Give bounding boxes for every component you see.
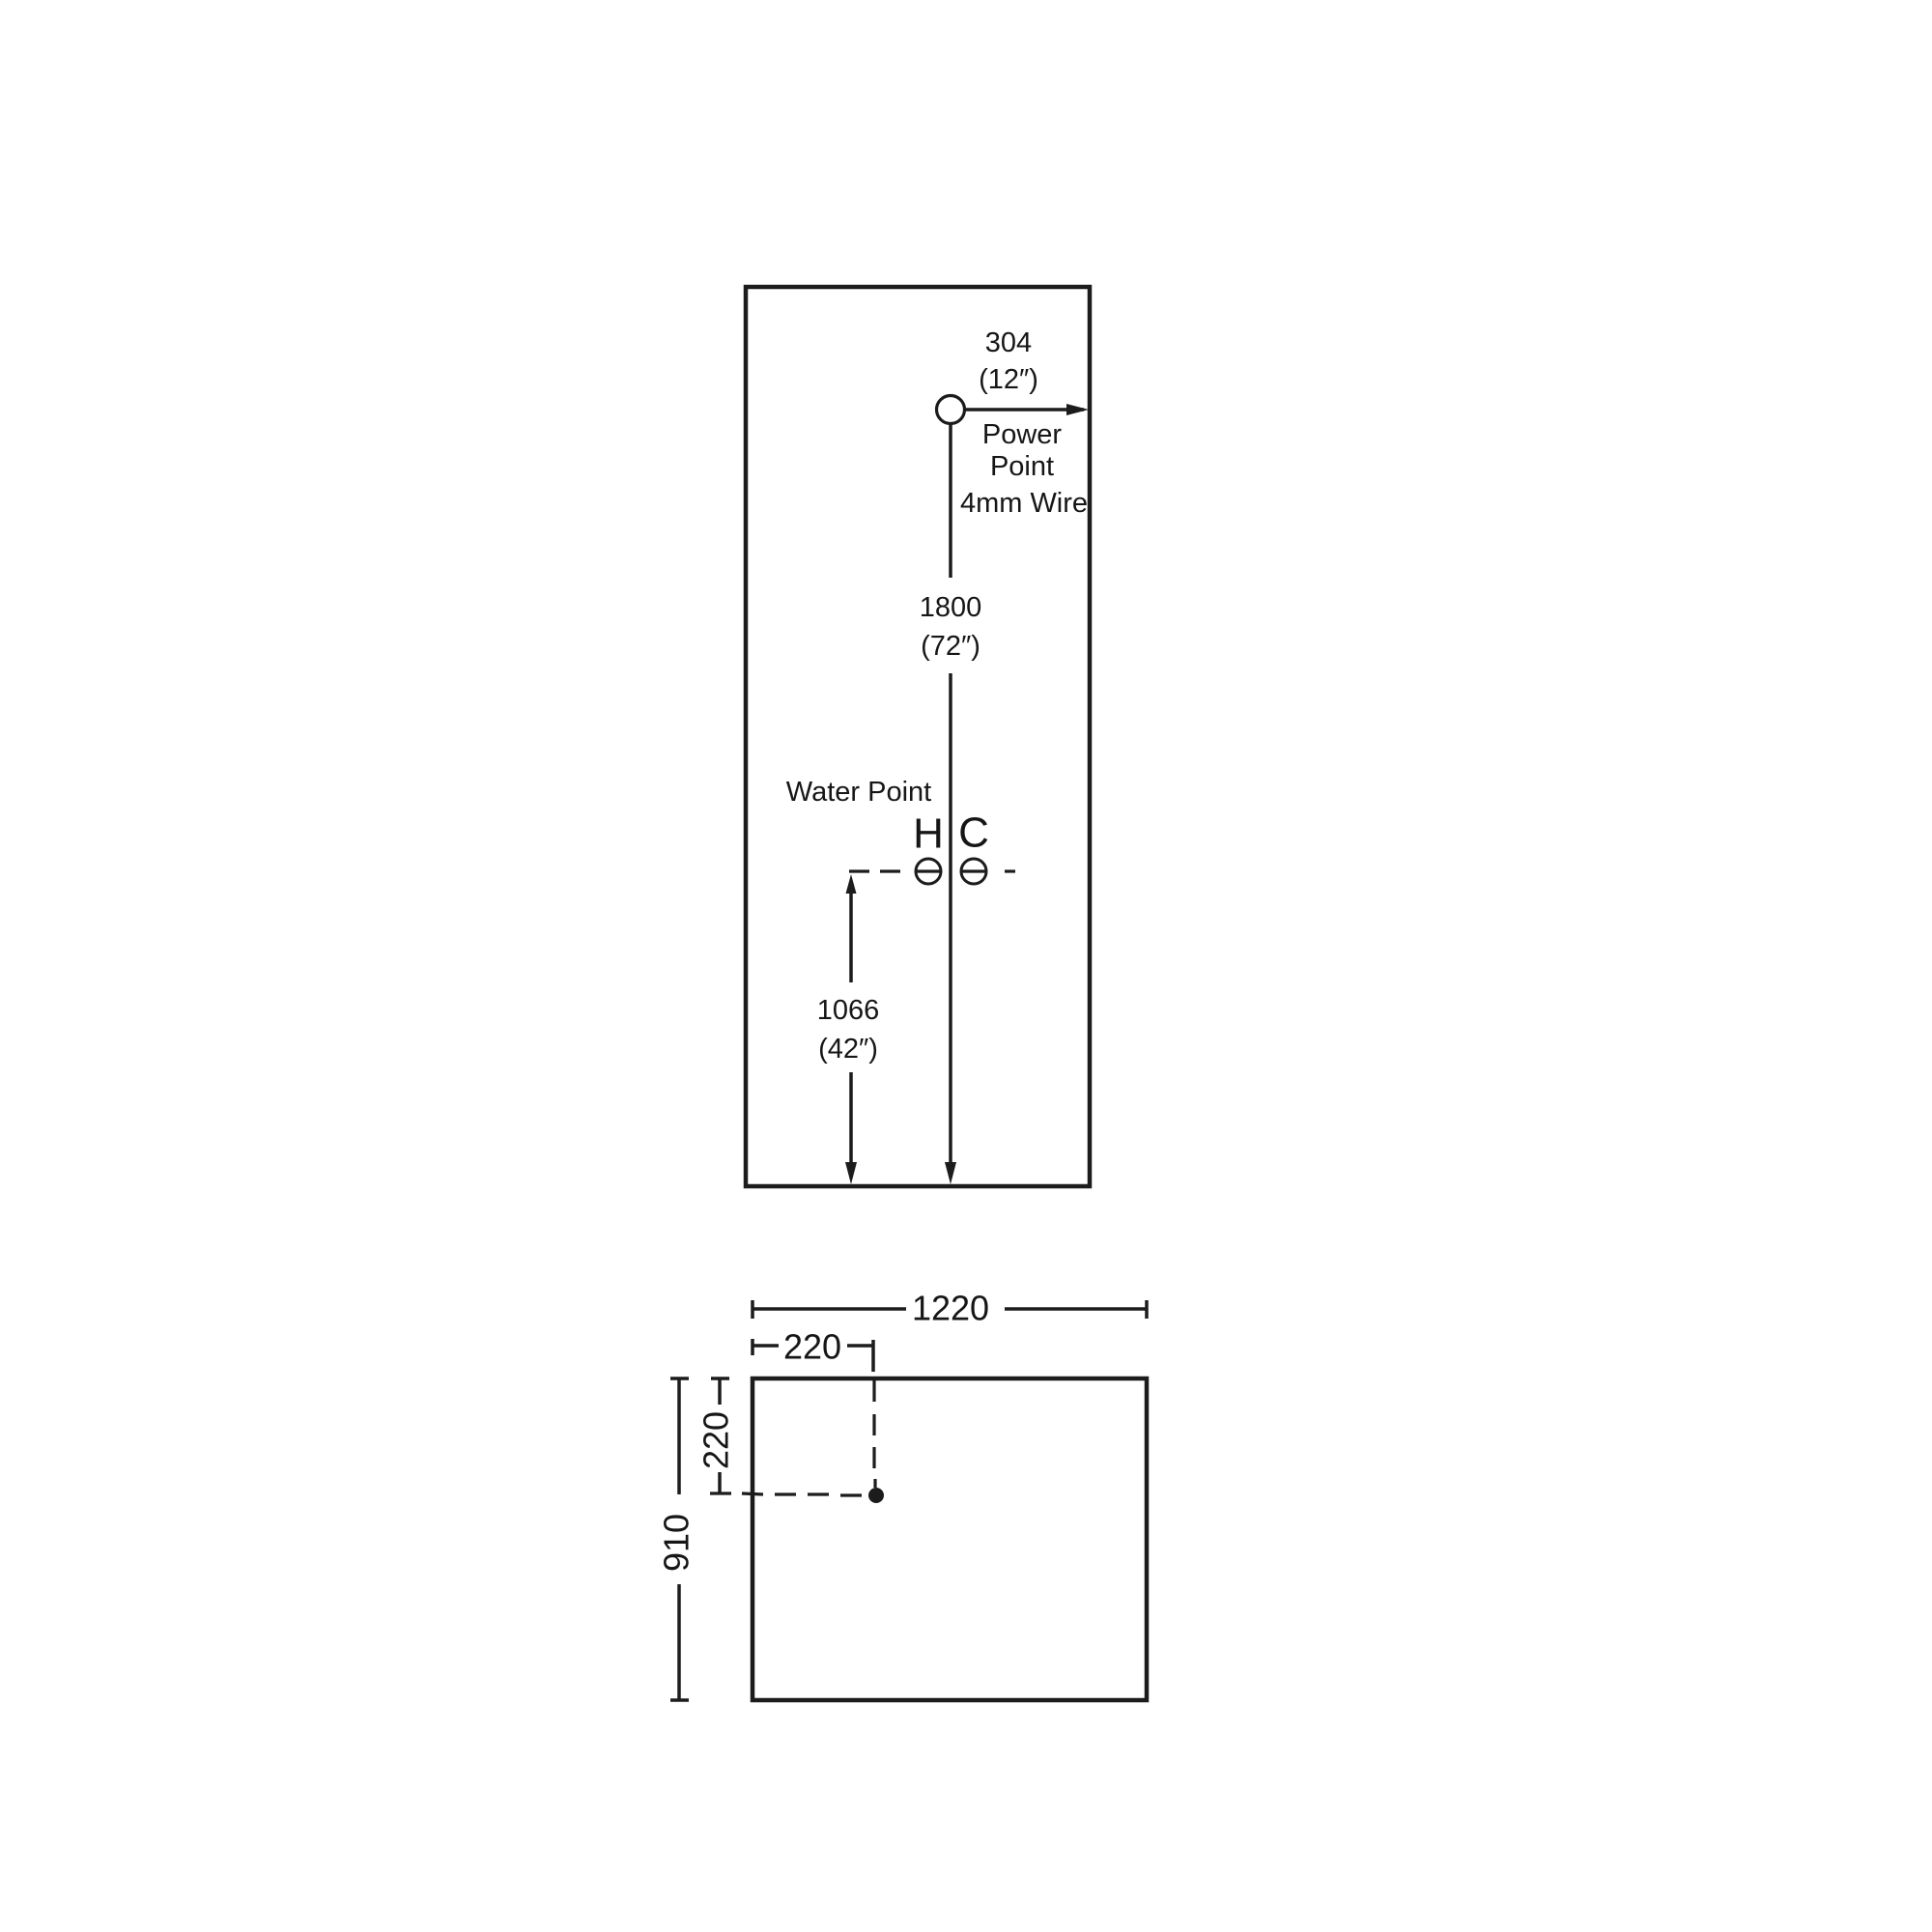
svg-text:Point: Point — [990, 451, 1054, 482]
svg-text:4mm Wire: 4mm Wire — [960, 488, 1088, 519]
svg-text:220: 220 — [696, 1411, 736, 1469]
svg-text:C: C — [958, 810, 989, 857]
svg-text:220: 220 — [783, 1327, 841, 1367]
svg-text:H: H — [913, 810, 944, 858]
svg-text:1066: 1066 — [817, 995, 880, 1026]
svg-text:910: 910 — [657, 1514, 696, 1572]
svg-text:(42″): (42″) — [818, 1034, 878, 1065]
svg-text:Power: Power — [982, 419, 1063, 450]
svg-text:1220: 1220 — [912, 1289, 989, 1328]
svg-text:Water Point: Water Point — [786, 777, 931, 808]
svg-text:(72″): (72″) — [921, 631, 980, 662]
svg-text:(12″): (12″) — [979, 364, 1038, 395]
svg-text:304: 304 — [985, 327, 1032, 358]
svg-text:1800: 1800 — [920, 592, 982, 623]
